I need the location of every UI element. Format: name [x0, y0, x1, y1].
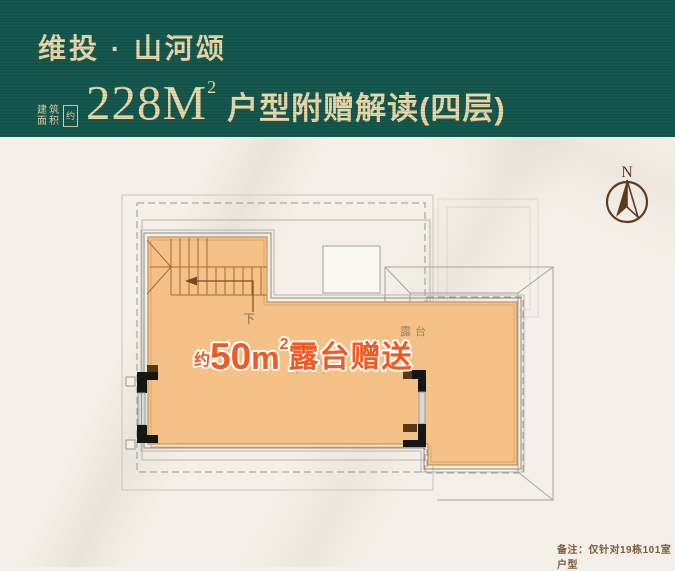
skylight-block: [323, 246, 380, 293]
floor-plan-drawing: N: [0, 0, 675, 567]
compass: N: [607, 164, 647, 222]
compass-n-label: N: [621, 164, 633, 181]
